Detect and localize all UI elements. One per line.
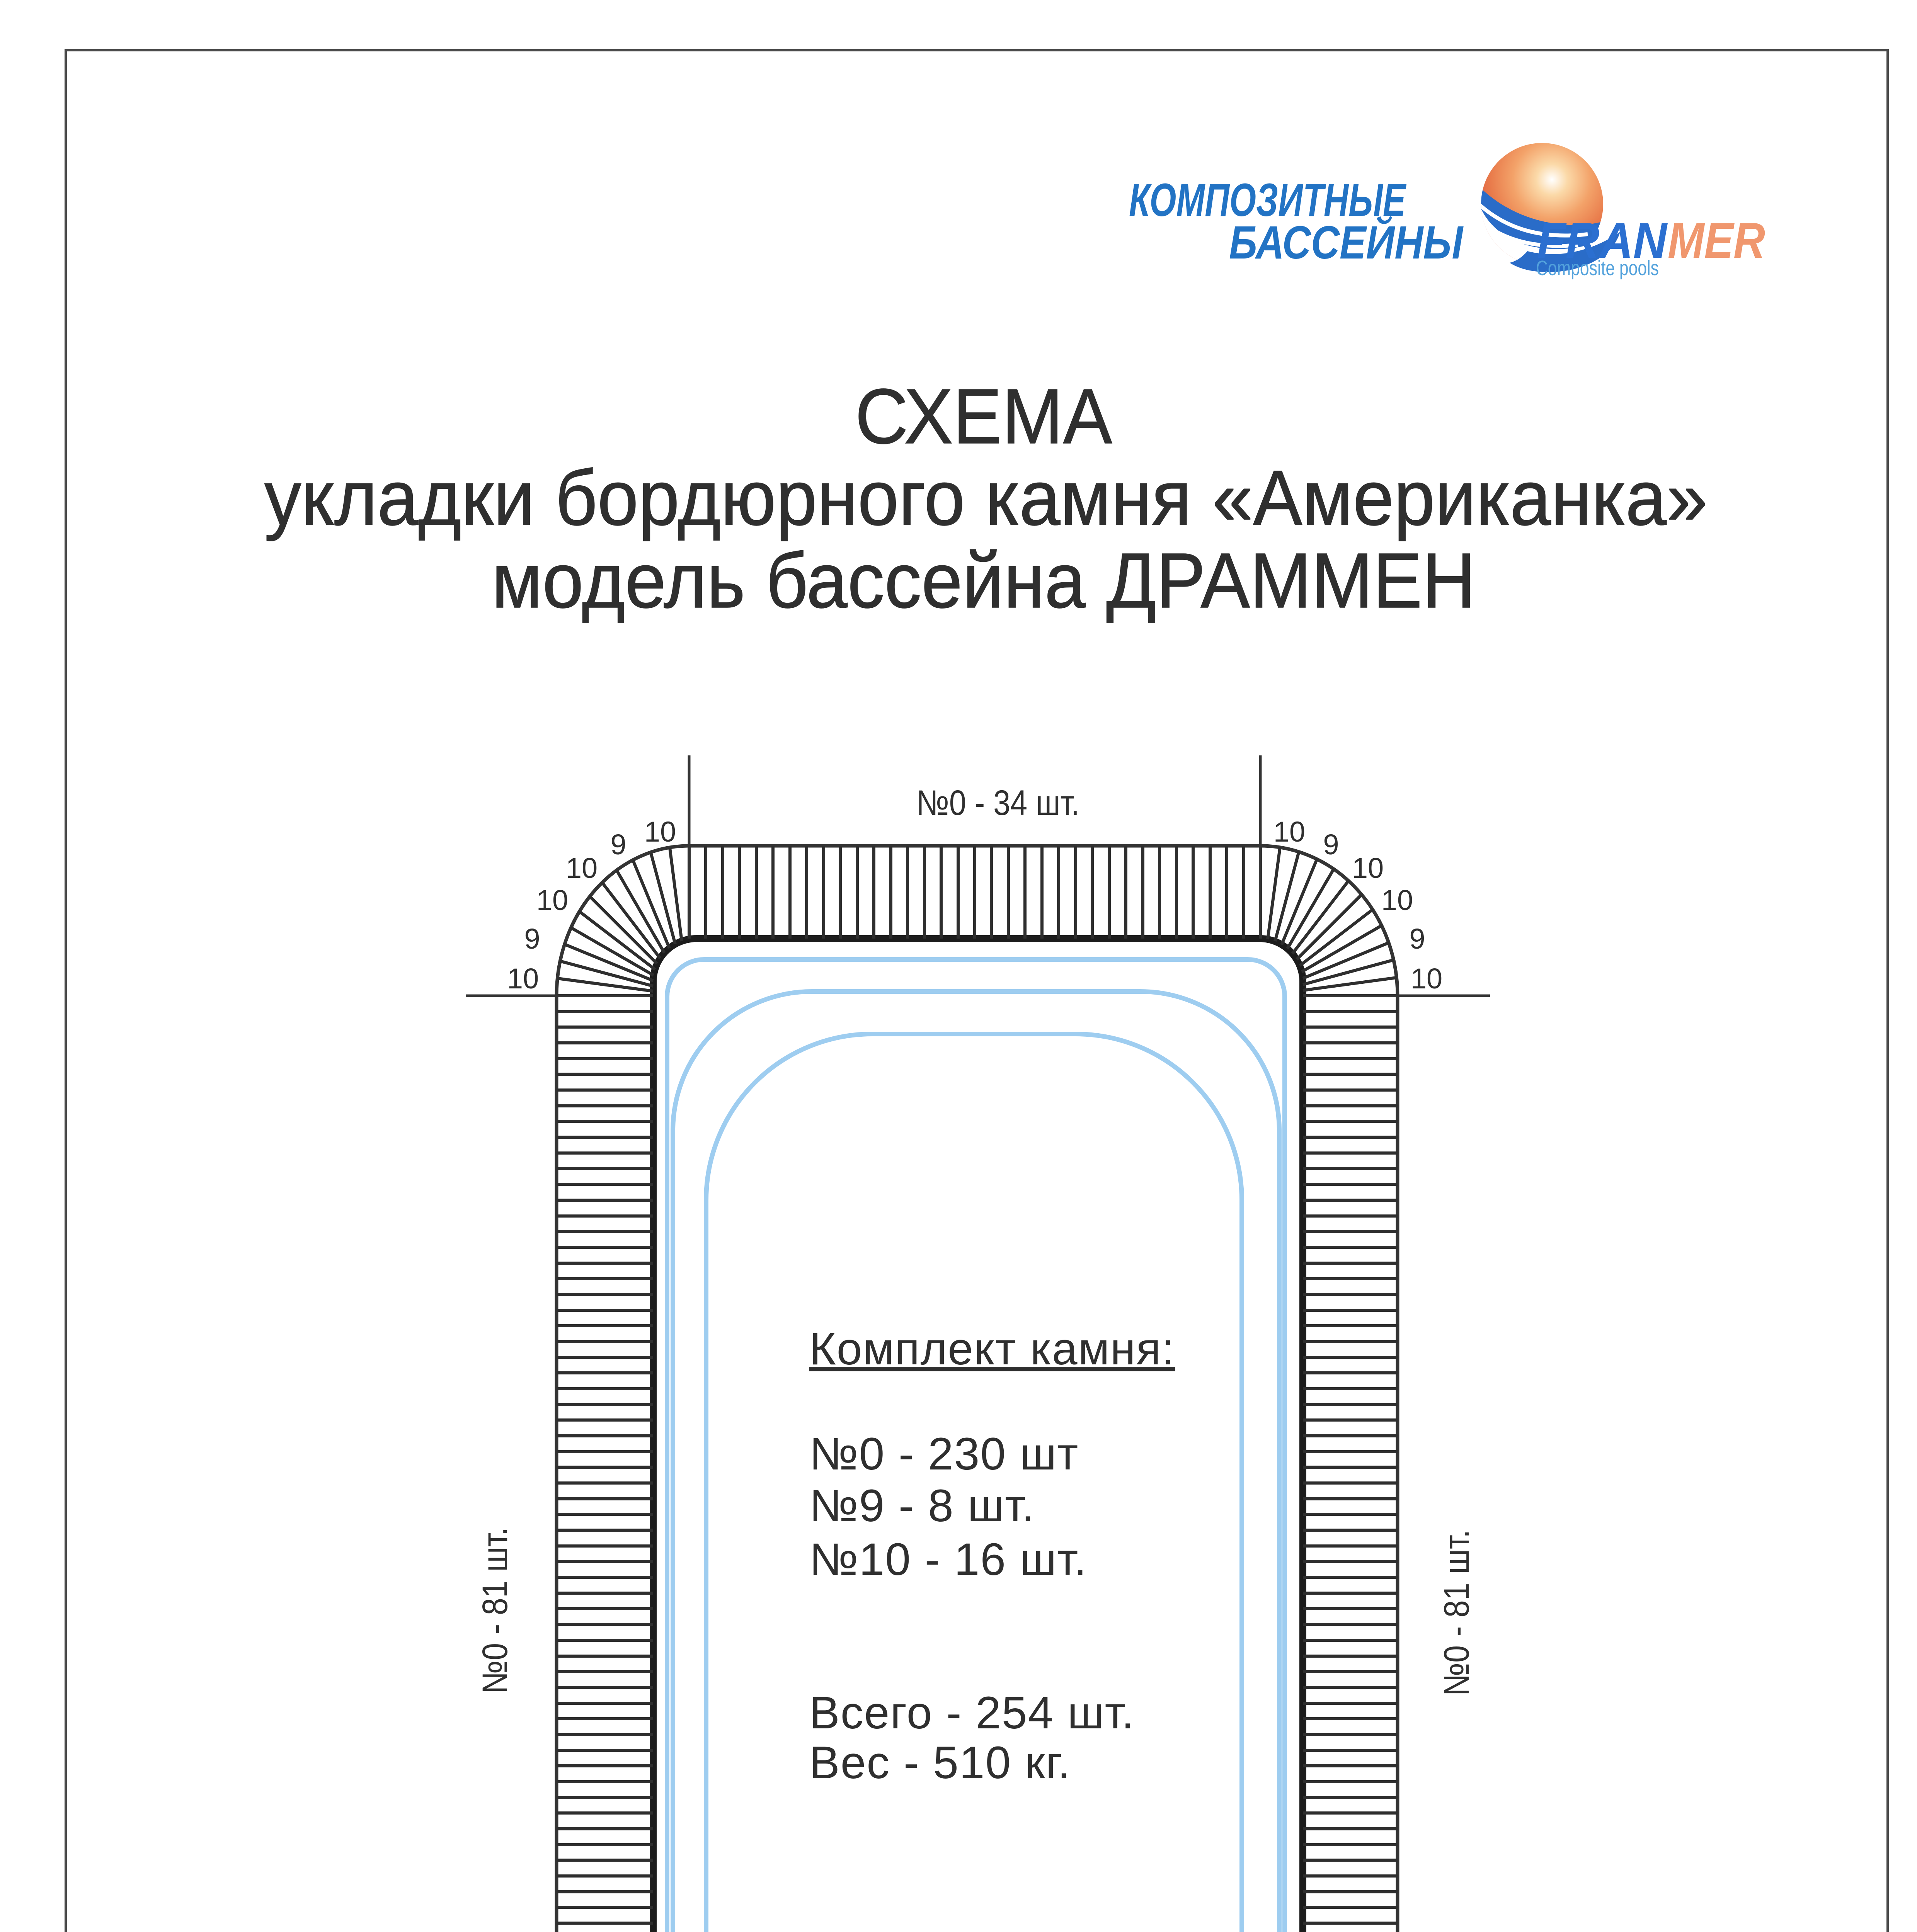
svg-text:9: 9 bbox=[1323, 828, 1339, 861]
svg-text:укладки бордюрного камня «Амер: укладки бордюрного камня «Американка» bbox=[264, 454, 1708, 541]
svg-text:10: 10 bbox=[1381, 884, 1413, 916]
svg-text:№0 - 230 шт: №0 - 230 шт bbox=[809, 1429, 1079, 1480]
svg-text:10: 10 bbox=[1411, 963, 1442, 995]
svg-text:№0 - 34 шт.: №0 - 34 шт. bbox=[916, 783, 1079, 823]
svg-text:Вес - 510 кг.: Вес - 510 кг. bbox=[809, 1737, 1071, 1788]
svg-text:№0 - 81 шт.: №0 - 81 шт. bbox=[475, 1527, 515, 1694]
svg-text:Комплект камня:: Комплект камня: bbox=[809, 1323, 1175, 1374]
svg-text:10: 10 bbox=[536, 884, 568, 916]
svg-text:MER: MER bbox=[1668, 212, 1765, 269]
svg-text:Всего - 254 шт.: Всего - 254 шт. bbox=[809, 1687, 1135, 1738]
svg-text:10: 10 bbox=[1273, 816, 1305, 848]
svg-text:модель бассейна ДРАММЕН: модель бассейна ДРАММЕН bbox=[492, 537, 1476, 624]
svg-text:№10 - 16 шт.: №10 - 16 шт. bbox=[809, 1534, 1087, 1585]
svg-text:№0 - 81 шт.: №0 - 81 шт. bbox=[1437, 1530, 1476, 1696]
svg-text:9: 9 bbox=[1409, 923, 1425, 955]
svg-text:10: 10 bbox=[644, 816, 676, 848]
svg-text:9: 9 bbox=[610, 828, 626, 861]
svg-text:СХЕМА: СХЕМА bbox=[855, 372, 1112, 460]
svg-text:10: 10 bbox=[1352, 852, 1384, 884]
svg-text:Composite pools: Composite pools bbox=[1536, 257, 1659, 280]
svg-text:10: 10 bbox=[566, 852, 598, 884]
svg-text:№9 - 8 шт.: №9 - 8 шт. bbox=[809, 1480, 1035, 1531]
svg-text:БАССЕЙНЫ: БАССЕЙНЫ bbox=[1229, 216, 1464, 269]
svg-text:10: 10 bbox=[507, 963, 539, 995]
svg-text:9: 9 bbox=[524, 923, 540, 955]
